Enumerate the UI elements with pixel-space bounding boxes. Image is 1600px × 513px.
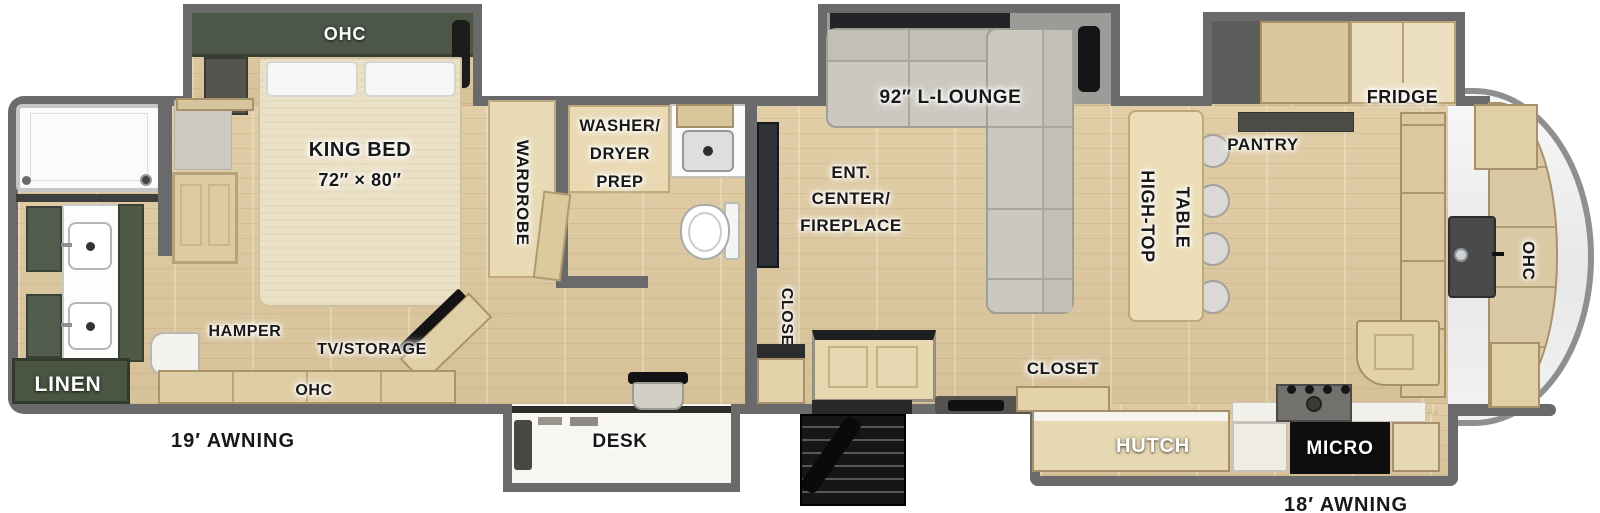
kitchen-cabinet (1232, 422, 1288, 472)
bath-bedroom-wall (158, 96, 172, 256)
king-bed-line2: 72″ × 80″ (278, 166, 442, 195)
washer-dryer-line2: DRYER (560, 140, 680, 168)
desk-chair-seat (632, 382, 684, 410)
wardrobe-label: WARDROBE (509, 108, 535, 278)
fridge-slide-cabinet (1260, 21, 1350, 104)
king-bed-line1: KING BED (278, 134, 442, 166)
sofa-cushion-divider (988, 278, 1072, 280)
linen-label: LINEN (16, 370, 120, 399)
rear-cabinet-bottom (1490, 342, 1540, 408)
pantry-counter (1238, 112, 1354, 132)
washer-dryer-line3: PREP (560, 168, 680, 196)
desk-slot (514, 420, 532, 470)
king-bed-label: KING BED 72″ × 80″ (278, 134, 442, 195)
closet-kitchen-cabinet (1016, 386, 1110, 412)
entry-closet-panel (828, 346, 868, 388)
entry-threshold (812, 400, 912, 414)
ent-center-line1: ENT. (786, 160, 916, 186)
desk-label: DESK (565, 428, 675, 457)
burner (1341, 385, 1350, 394)
entry-counter-inset (948, 400, 1004, 411)
bedroom-ohc-label: OHC (300, 22, 390, 47)
cooktop-knob (1306, 396, 1322, 412)
hutch-label: HUTCH (1098, 432, 1208, 460)
vanity-mirror (26, 206, 62, 272)
rear-ohc-label: OHC (1515, 225, 1541, 297)
lounge-window-slot (1078, 26, 1100, 92)
rear-cabinet-top (1474, 104, 1538, 170)
midbath-right-wall (745, 96, 757, 414)
sofa-cushion-divider (988, 208, 1072, 210)
midbath-bottom-wall (556, 276, 648, 288)
ent-center-line2: CENTER/ (786, 186, 916, 212)
sink-drain (86, 242, 95, 251)
tv-storage-label: TV/STORAGE (298, 338, 446, 362)
shower-drain (140, 174, 152, 186)
bath-cabinet-column (118, 204, 144, 362)
door-panel-line (180, 184, 202, 246)
desk-item (538, 417, 562, 425)
high-top-label-line2: TABLE (1169, 158, 1196, 278)
desk-item (570, 417, 598, 426)
shower-pan-line (30, 113, 148, 181)
closet-dark-band (757, 344, 805, 358)
rear-sink-drain (1454, 248, 1468, 262)
shower-drain-small (22, 176, 31, 185)
pantry-label: PANTRY (1208, 132, 1318, 158)
hutch-counter-edge (1034, 412, 1228, 421)
burner (1287, 385, 1296, 394)
desk-edge (512, 406, 731, 413)
shower-ledge (16, 194, 162, 202)
closet-cabinet (757, 358, 805, 404)
entry-closet-panel (876, 346, 918, 388)
awning-right-label: 18′ AWNING (1256, 490, 1436, 513)
sofa-cushion-divider (988, 126, 1072, 128)
door-panel-line (208, 184, 230, 246)
floorplan-scene: OHC KING BED 72″ × 80″ LINEN HAMPER TV/S… (0, 0, 1600, 513)
toilet-seat (688, 212, 722, 252)
fridge-label: FRIDGE (1345, 84, 1460, 111)
bedroom-shelf (176, 98, 254, 111)
pillow (266, 61, 358, 97)
vanity-mirror (26, 294, 62, 358)
hamper-label: HAMPER (195, 320, 295, 344)
sink-drain (703, 146, 713, 156)
micro-label: MICRO (1298, 436, 1382, 463)
faucet (61, 243, 72, 247)
pillow (364, 61, 456, 97)
rear-faucet (1492, 252, 1504, 256)
burner (1323, 385, 1332, 394)
sofa-right-section (986, 28, 1074, 314)
midbath-shelf (676, 104, 734, 128)
ent-center-line3: FIREPLACE (786, 213, 916, 239)
kitchen-cabinet (1392, 422, 1440, 472)
l-lounge-label: 92″ L-LOUNGE (848, 84, 1053, 113)
washer-dryer-label: WASHER/ DRYER PREP (560, 112, 680, 196)
ent-center-fireplace (757, 122, 779, 268)
ent-center-label: ENT. CENTER/ FIREPLACE (786, 160, 916, 239)
fridge-slide-dark (1212, 21, 1260, 104)
sofa-back-band (1042, 30, 1072, 312)
awning-left-label: 19′ AWNING (148, 426, 318, 456)
sink-drain (86, 322, 95, 331)
bottom-ohc-label: OHC (282, 379, 346, 403)
washer-dryer-line1: WASHER/ (560, 112, 680, 140)
high-top-label-line1: HIGH-TOP (1134, 117, 1161, 317)
corner-cabinet-panel (1374, 334, 1414, 370)
burner (1305, 385, 1314, 394)
fridge-divider (1402, 23, 1404, 83)
closet-kitchen-label: CLOSET (1008, 356, 1118, 382)
faucet (61, 323, 72, 327)
lounge-window-band (830, 13, 1010, 29)
